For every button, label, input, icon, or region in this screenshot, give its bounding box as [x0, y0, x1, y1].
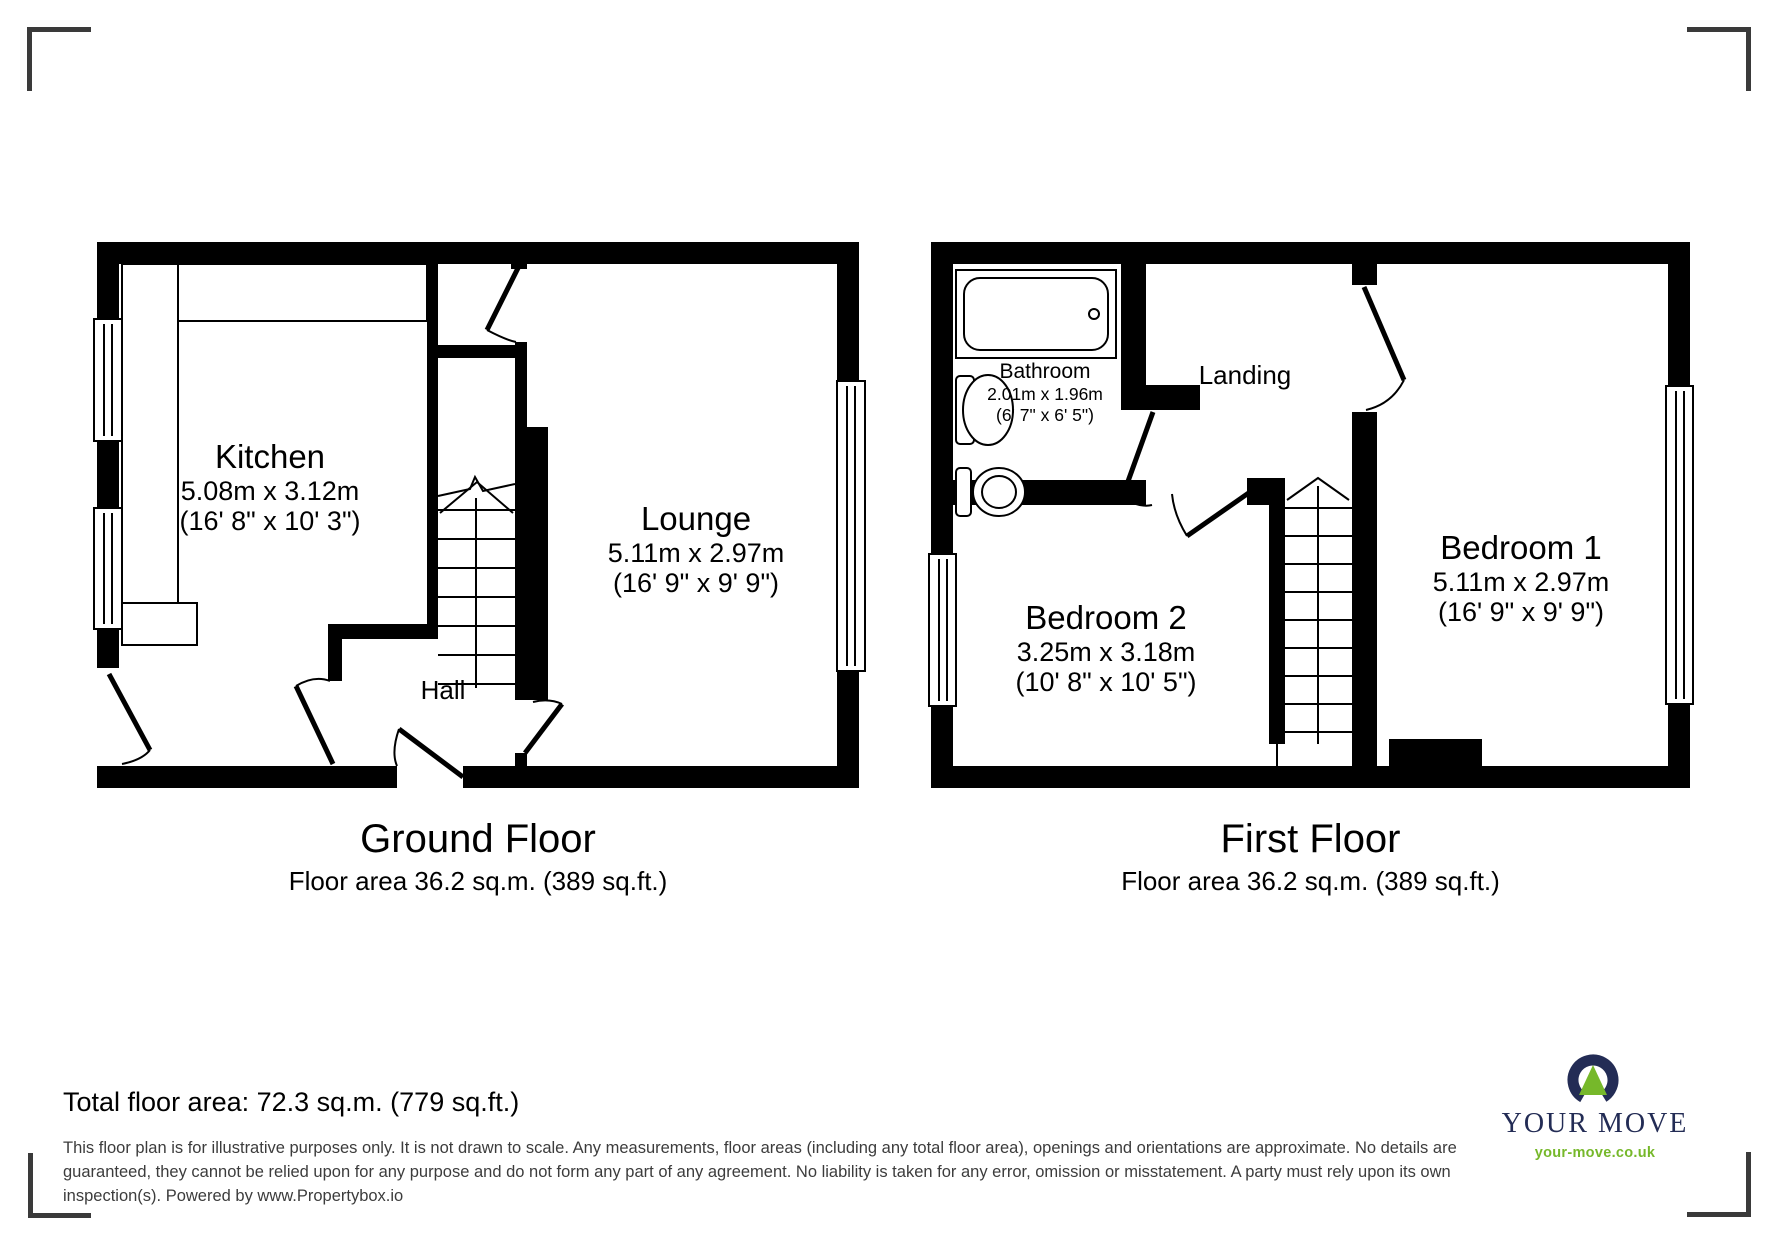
- disclaimer-text: This floor plan is for illustrative purp…: [63, 1136, 1463, 1209]
- hall-label: Hall: [343, 676, 543, 704]
- logo-brand-text: YOUR MOVE: [1495, 1108, 1695, 1140]
- room-name: Kitchen: [70, 437, 470, 476]
- crop-mark-bottom-right: [1687, 1152, 1751, 1217]
- room-dim-metric: 3.25m x 3.18m: [906, 637, 1306, 667]
- window: [93, 318, 123, 442]
- ground-floor-title: Ground Floor: [97, 818, 859, 860]
- wall: [97, 242, 859, 264]
- crop-mark-top-left: [27, 27, 91, 91]
- logo-triangle: [1579, 1065, 1607, 1095]
- crop-mark-bottom-left: [28, 1153, 91, 1218]
- chimney-breast: [1389, 739, 1482, 766]
- room-dim-metric: 5.11m x 2.97m: [496, 538, 896, 568]
- landing-label: Landing: [1145, 361, 1345, 389]
- first-floor-area: Floor area 36.2 sq.m. (389 sq.ft.): [931, 866, 1690, 896]
- room-name: Bedroom 2: [906, 598, 1306, 637]
- wall-kitchen-bottom: [328, 624, 438, 639]
- room-dim-imperial: (16' 9" x 9' 9"): [1321, 597, 1721, 627]
- room-name: Landing: [1145, 361, 1345, 389]
- wall: [97, 766, 397, 788]
- room-dim-imperial: (16' 8" x 10' 3"): [70, 506, 470, 536]
- bedroom1-door-leaf: [1364, 287, 1404, 380]
- wall: [931, 242, 1690, 264]
- floorplan-page: Kitchen 5.08m x 3.12m (16' 8" x 10' 3") …: [0, 0, 1771, 1239]
- lounge-label: Lounge 5.11m x 2.97m (16' 9" x 9' 9"): [496, 499, 896, 598]
- wall: [97, 630, 119, 668]
- wall: [931, 242, 953, 553]
- room-dim-imperial: (10' 8" x 10' 5"): [906, 667, 1306, 697]
- wall: [931, 766, 1690, 788]
- wall: [1668, 705, 1690, 788]
- disclaimer-line-1: This floor plan is for illustrative purp…: [63, 1136, 1463, 1160]
- logo-url-text: your-move.co.uk: [1495, 1145, 1695, 1161]
- window-pane: [103, 324, 113, 436]
- hall-kitchen-door-leaf: [296, 686, 333, 764]
- bedroom2-door-leaf: [1187, 492, 1250, 536]
- wall: [1668, 242, 1690, 385]
- wall-cupboard-bottom: [437, 345, 515, 358]
- room-dim-imperial: (16' 9" x 9' 9"): [496, 568, 896, 598]
- room-name: Hall: [343, 676, 543, 704]
- wall: [463, 766, 859, 788]
- disclaimer-line-2: guaranteed, they cannot be relied upon f…: [63, 1160, 1463, 1184]
- room-dim-metric: 5.08m x 3.12m: [70, 476, 470, 506]
- ground-floor-area: Floor area 36.2 sq.m. (389 sq.ft.): [97, 866, 859, 896]
- room-dim-imperial: (6' 7" x 6' 5"): [955, 405, 1135, 426]
- total-floor-area: Total floor area: 72.3 sq.m. (779 sq.ft.…: [63, 1086, 519, 1118]
- kitchen-back-door-leaf: [109, 674, 150, 750]
- hall-lounge-door-leaf: [525, 704, 562, 753]
- first-floor-title: First Floor: [931, 818, 1690, 860]
- room-name: Bedroom 1: [1321, 528, 1721, 567]
- bedroom1-label: Bedroom 1 5.11m x 2.97m (16' 9" x 9' 9"): [1321, 528, 1721, 627]
- wall-hall-lounge-stub: [515, 753, 527, 766]
- kitchen-lounge-door-leaf: [487, 266, 519, 330]
- wall: [837, 242, 859, 380]
- room-name: Lounge: [496, 499, 896, 538]
- wall: [837, 672, 859, 788]
- bedroom2-label: Bedroom 2 3.25m x 3.18m (10' 8" x 10' 5"…: [906, 598, 1306, 697]
- bathtub: [956, 270, 1116, 358]
- stairs-direction-chevron: [1287, 478, 1349, 500]
- wall-door-hinge-plate: [511, 260, 527, 269]
- your-move-logo-icon: [1566, 1053, 1620, 1107]
- bathroom-label: Bathroom 2.01m x 1.96m (6' 7" x 6' 5"): [955, 359, 1135, 426]
- wall: [97, 242, 119, 318]
- disclaimer-line-3: inspection(s). Powered by www.Propertybo…: [63, 1184, 1463, 1208]
- crop-mark-top-right: [1687, 27, 1751, 91]
- wall-hall-stub: [328, 639, 342, 681]
- room-dim-metric: 2.01m x 1.96m: [955, 384, 1135, 405]
- kitchen-label: Kitchen 5.08m x 3.12m (16' 8" x 10' 3"): [70, 437, 470, 536]
- wall-bathroom-bottom: [953, 480, 1146, 505]
- room-name: Bathroom: [955, 359, 1135, 384]
- front-door-leaf: [399, 729, 463, 777]
- room-dim-metric: 5.11m x 2.97m: [1321, 567, 1721, 597]
- wall-bedroom1-stub: [1352, 262, 1377, 285]
